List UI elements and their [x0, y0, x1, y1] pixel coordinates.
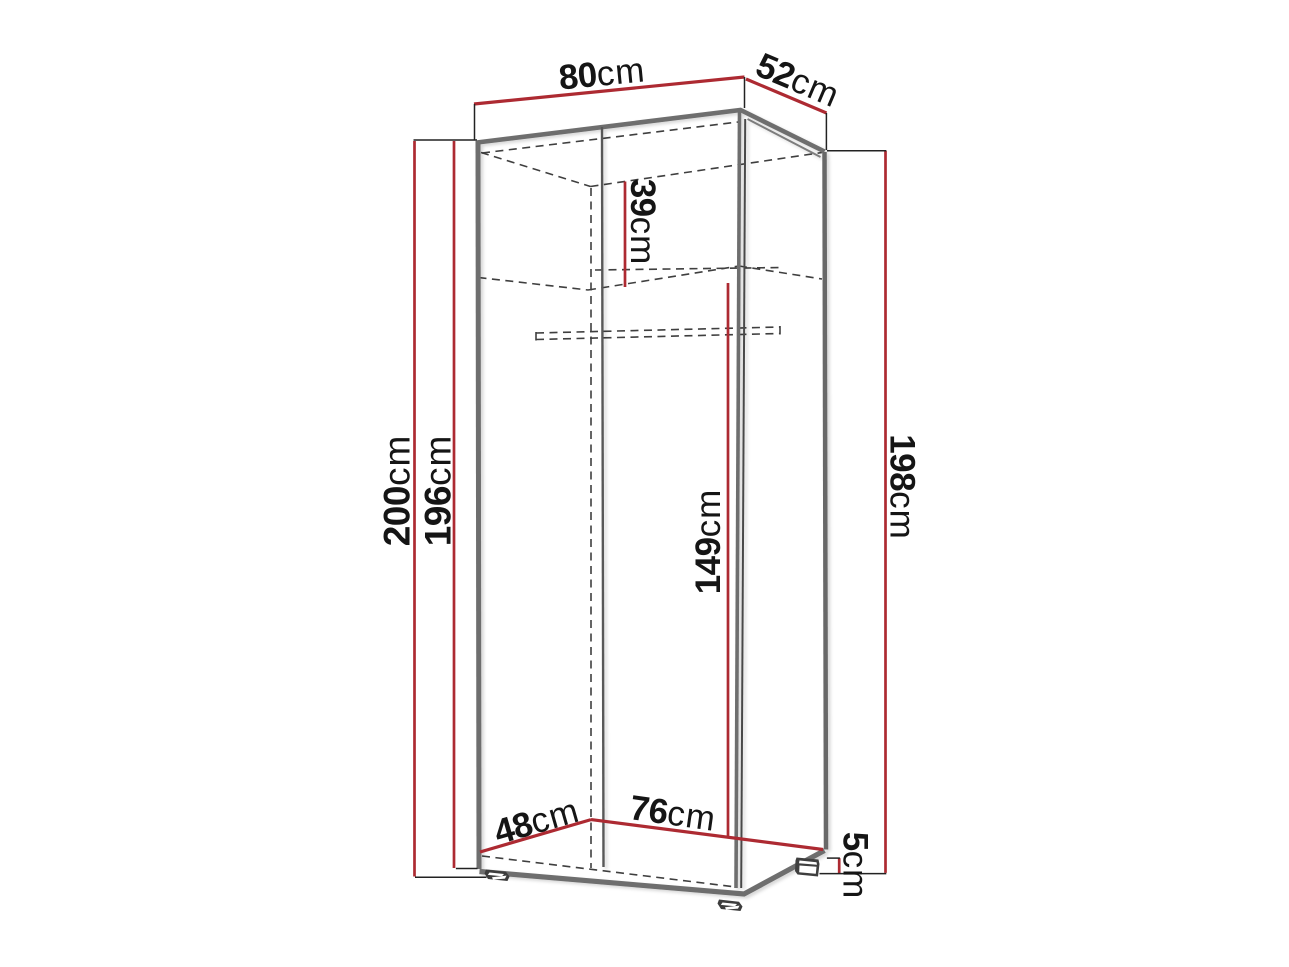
svg-text:200cm: 200cm [376, 435, 417, 547]
svg-text:196cm: 196cm [417, 435, 458, 547]
svg-text:80cm: 80cm [557, 50, 647, 97]
svg-text:198cm: 198cm [883, 434, 922, 540]
svg-text:5cm: 5cm [836, 832, 875, 900]
svg-text:149cm: 149cm [689, 489, 728, 595]
svg-text:39cm: 39cm [624, 179, 663, 266]
